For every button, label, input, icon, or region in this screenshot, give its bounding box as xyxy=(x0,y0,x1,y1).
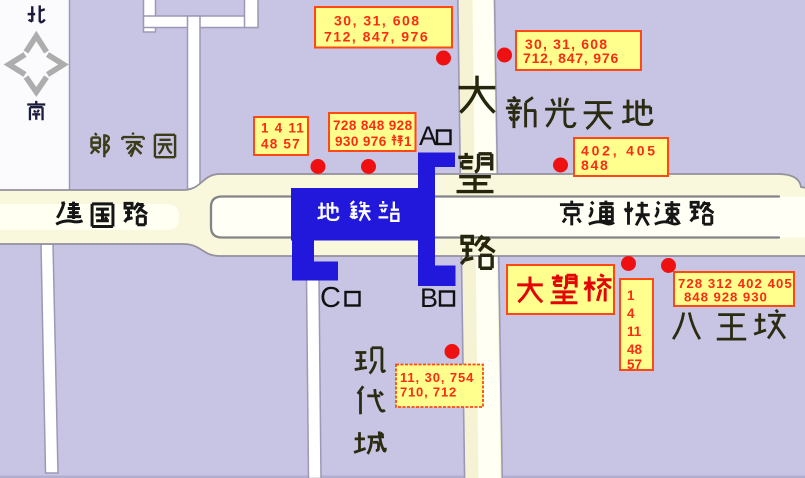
svg-text:11: 11 xyxy=(627,324,642,339)
svg-text:A: A xyxy=(419,121,437,151)
svg-text:848 928 930: 848 928 930 xyxy=(684,290,768,305)
svg-text:11, 30, 754: 11, 30, 754 xyxy=(400,370,474,385)
svg-text:930 976: 930 976 xyxy=(335,134,387,149)
svg-text:30, 31, 608: 30, 31, 608 xyxy=(334,13,421,29)
svg-text:C: C xyxy=(320,282,341,314)
svg-text:710, 712: 710, 712 xyxy=(400,385,457,400)
svg-text:712, 847, 976: 712, 847, 976 xyxy=(324,29,429,45)
svg-text:1: 1 xyxy=(627,288,635,303)
svg-text:B: B xyxy=(420,283,438,313)
svg-text:728 848 928: 728 848 928 xyxy=(333,118,413,133)
svg-text:848: 848 xyxy=(581,157,609,173)
svg-text:48 57: 48 57 xyxy=(261,137,301,152)
svg-text:57: 57 xyxy=(627,357,642,372)
svg-text:48: 48 xyxy=(627,342,643,357)
svg-text:1 4 11: 1 4 11 xyxy=(261,121,305,136)
svg-text:712, 847, 976: 712, 847, 976 xyxy=(523,50,619,66)
svg-text:4: 4 xyxy=(627,306,635,321)
svg-text:1: 1 xyxy=(404,134,412,149)
